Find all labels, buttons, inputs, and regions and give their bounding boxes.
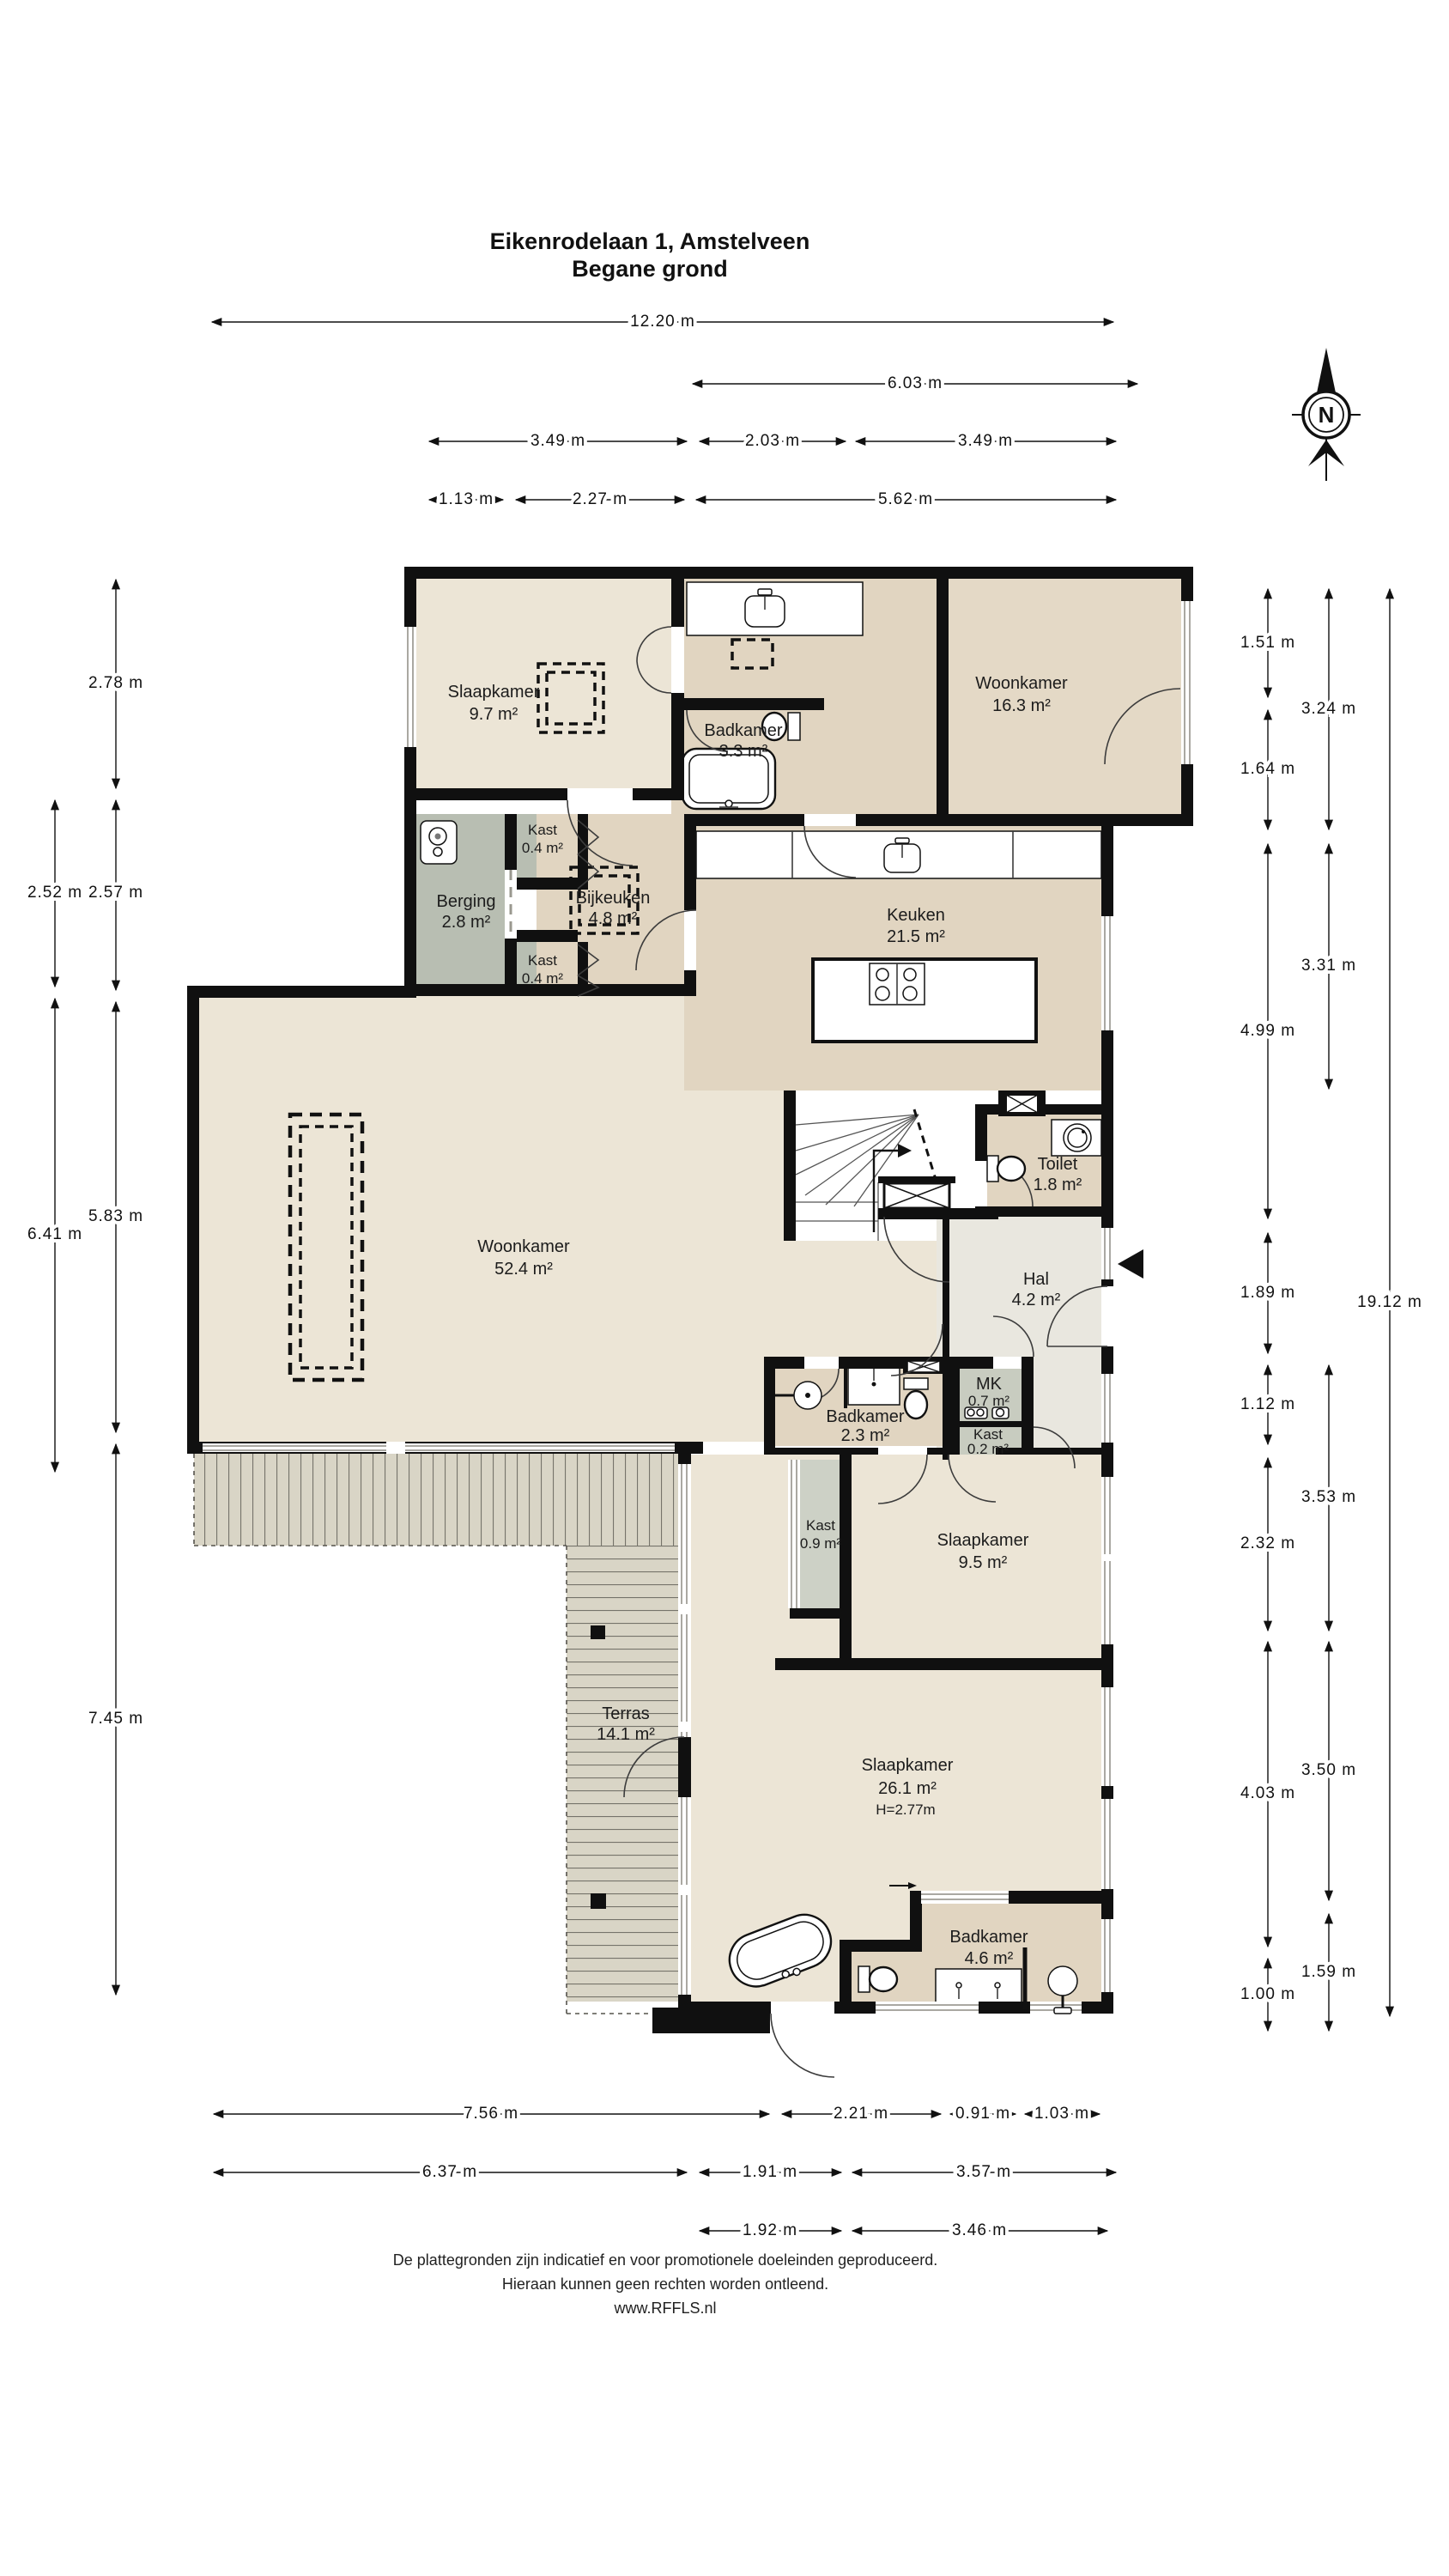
toilet-icon — [904, 1378, 928, 1419]
dim-label: 5.83 m — [88, 1207, 143, 1225]
label-badkamer1-area: 3.3 m² — [719, 742, 768, 761]
entrance-marker-icon — [1118, 1249, 1143, 1279]
label-slaapkamer1-area: 9.7 m² — [470, 705, 518, 724]
label-bijkeuken-area: 4.8 m² — [589, 909, 638, 928]
dim-label: 1.91 m — [743, 2163, 797, 2181]
lift-shaft-icon — [884, 1183, 949, 1208]
dim-label: 6.37 m — [422, 2163, 477, 2181]
window — [404, 627, 416, 747]
label-slaapkamer3-height: H=2.77m — [876, 1801, 935, 1818]
dim-label: 2.52 m — [27, 884, 82, 902]
dim-label: 1.03 m — [1034, 2105, 1089, 2123]
terras-column — [591, 1625, 605, 1639]
dim-label: 4.99 m — [1240, 1022, 1295, 1040]
label-slaapkamer3-name: Slaapkamer — [862, 1756, 954, 1775]
dim-label: 3.31 m — [1301, 957, 1356, 975]
label-kast1-name: Kast — [528, 822, 557, 838]
dim-label: 3.57 m — [956, 2163, 1011, 2181]
compass-north-label: N — [1319, 402, 1335, 428]
dim-label: 1.64 m — [1240, 760, 1295, 778]
window-band — [678, 1464, 691, 1737]
label-kast4-area: 0.9 m² — [800, 1535, 842, 1552]
window — [1101, 1374, 1113, 1443]
label-slaapkamer1-name: Slaapkamer — [448, 683, 540, 702]
label-hal-name: Hal — [1023, 1270, 1049, 1289]
label-woonkamer1-area: 16.3 m² — [992, 696, 1051, 715]
window — [1101, 1919, 1113, 1992]
label-badkamer1-name: Badkamer — [704, 721, 782, 740]
boiler-icon — [421, 821, 457, 864]
compass-north-icon: N — [1292, 348, 1361, 481]
dim-label: 1.51 m — [1240, 634, 1295, 652]
label-slaapkamer2-name: Slaapkamer — [937, 1531, 1029, 1550]
dim-label: 7.56 m — [464, 2105, 518, 2123]
dim-label: 2.78 m — [88, 674, 143, 692]
footer-line2: Hieraan kunnen geen rechten worden ontle… — [502, 2275, 828, 2293]
dim-label: 12.20 m — [630, 313, 695, 331]
dim-label: 2.57 m — [88, 884, 143, 902]
label-toilet-name: Toilet — [1038, 1155, 1078, 1174]
dim-label: 1.00 m — [1240, 1985, 1295, 2003]
dim-label: 6.41 m — [27, 1225, 82, 1243]
dim-label: 1.12 m — [1240, 1395, 1295, 1413]
label-kast2-area: 0.4 m² — [522, 970, 564, 987]
front-door-opening — [1101, 1286, 1113, 1346]
label-terras-name: Terras — [602, 1704, 650, 1723]
dim-label: 4.03 m — [1240, 1784, 1295, 1802]
stove-icon — [870, 963, 925, 1005]
floorplan-page: Eikenrodelaan 1, Amstelveen Begane grond — [0, 0, 1449, 2576]
round-basin-icon — [1064, 1124, 1091, 1151]
window — [1101, 1477, 1113, 1644]
label-slaapkamer2-area: 9.5 m² — [959, 1553, 1008, 1572]
window — [1101, 916, 1113, 1030]
dim-label: 1.59 m — [1301, 1963, 1356, 1981]
dimensions-left: 2.78 m 2.52 m 2.57 m 6.41 m 5.83 m 7.45 … — [27, 580, 143, 1995]
deck-strip — [194, 1454, 678, 1546]
dim-label: 1.89 m — [1240, 1284, 1295, 1302]
terras-column — [591, 1893, 606, 1909]
dim-label: 19.12 m — [1357, 1293, 1422, 1311]
label-keuken-area: 21.5 m² — [887, 927, 945, 946]
dim-label: 2.32 m — [1240, 1534, 1295, 1552]
label-toilet-area: 1.8 m² — [1034, 1176, 1082, 1194]
label-terras-area: 14.1 m² — [597, 1725, 655, 1744]
window — [1101, 1228, 1113, 1279]
dim-label: 2.27 m — [573, 490, 627, 508]
room-slaapkamer-26-1-a — [691, 1455, 775, 2002]
terras-deck — [567, 1546, 678, 2002]
window — [1181, 601, 1193, 764]
window — [1101, 1687, 1113, 1786]
label-berging-name: Berging — [437, 892, 496, 911]
label-kast4-name: Kast — [806, 1517, 835, 1534]
dim-label: 2.03 m — [745, 432, 800, 450]
label-mk-area: 0.7 m² — [968, 1393, 1010, 1409]
label-badkamer2-area: 2.3 m² — [841, 1426, 890, 1445]
dim-label: 3.53 m — [1301, 1488, 1356, 1506]
sliding-door — [921, 1891, 1009, 1904]
label-woonkamer2-name: Woonkamer — [477, 1237, 570, 1256]
dim-label: 3.24 m — [1301, 700, 1356, 718]
footer-website: www.RFFLS.nl — [613, 2300, 716, 2317]
window-band — [678, 1797, 691, 1995]
label-badkamer2-name: Badkamer — [826, 1407, 904, 1426]
footer-line1: De plattegronden zijn indicatief en voor… — [393, 2251, 937, 2269]
label-keuken-name: Keuken — [887, 906, 945, 925]
label-kast2-name: Kast — [528, 952, 557, 969]
washbasin-icon — [848, 1365, 900, 1405]
dim-label: 3.50 m — [1301, 1761, 1356, 1779]
label-kast1-area: 0.4 m² — [522, 840, 564, 856]
dimensions-right: 1.51 m 1.64 m 4.99 m 1.89 m 1.12 m 2.32 … — [1240, 589, 1422, 2031]
dim-label: 3.46 m — [952, 2221, 1007, 2239]
room-kast-0-9 — [800, 1460, 840, 1608]
toilet-icon — [858, 1966, 897, 1992]
floorplan-canvas: Eikenrodelaan 1, Amstelveen Begane grond — [0, 0, 1449, 2576]
dim-label: 3.49 m — [530, 432, 585, 450]
garden-door-opening — [771, 2002, 834, 2014]
dim-label: 2.21 m — [834, 2105, 888, 2123]
toilet-icon — [987, 1156, 1025, 1182]
label-slaapkamer3-area: 26.1 m² — [878, 1779, 937, 1798]
dimensions-top: 12.20 m 6.03 m 3.49 m 2.03 m 3.49 m 1.13… — [212, 313, 1137, 508]
window-band — [203, 1442, 675, 1454]
page-title-line1: Eikenrodelaan 1, Amstelveen — [490, 228, 810, 254]
sliding-door — [788, 1460, 800, 1608]
kitchen-island — [813, 959, 1036, 1042]
window — [876, 2002, 979, 2014]
label-kast3-area: 0.2 m² — [967, 1441, 1009, 1457]
shaft-icon — [1006, 1095, 1038, 1113]
label-badkamer3-name: Badkamer — [949, 1928, 1028, 1947]
dim-label: 1.13 m — [439, 490, 494, 508]
dimensions-bottom: 7.56 m 2.21 m 0.91 m 1.03 m 6.37 m 1.91 … — [214, 2105, 1116, 2239]
footer-disclaimer: De plattegronden zijn indicatief en voor… — [393, 2251, 937, 2317]
dim-label: 3.49 m — [958, 432, 1013, 450]
page-title-line2: Begane grond — [572, 256, 728, 282]
window — [1101, 1799, 1113, 1889]
label-bijkeuken-name: Bijkeuken — [576, 889, 651, 908]
dim-label: 0.91 m — [955, 2105, 1010, 2123]
label-woonkamer2-area: 52.4 m² — [494, 1260, 553, 1279]
dim-label: 7.45 m — [88, 1710, 143, 1728]
label-badkamer3-area: 4.6 m² — [965, 1949, 1014, 1968]
label-hal-area: 4.2 m² — [1012, 1291, 1061, 1309]
dim-label: 1.92 m — [743, 2221, 797, 2239]
dim-label: 6.03 m — [888, 374, 943, 392]
label-mk-name: MK — [976, 1375, 1003, 1394]
label-woonkamer1-name: Woonkamer — [975, 674, 1068, 693]
dim-label: 5.62 m — [878, 490, 933, 508]
label-berging-area: 2.8 m² — [442, 913, 491, 932]
